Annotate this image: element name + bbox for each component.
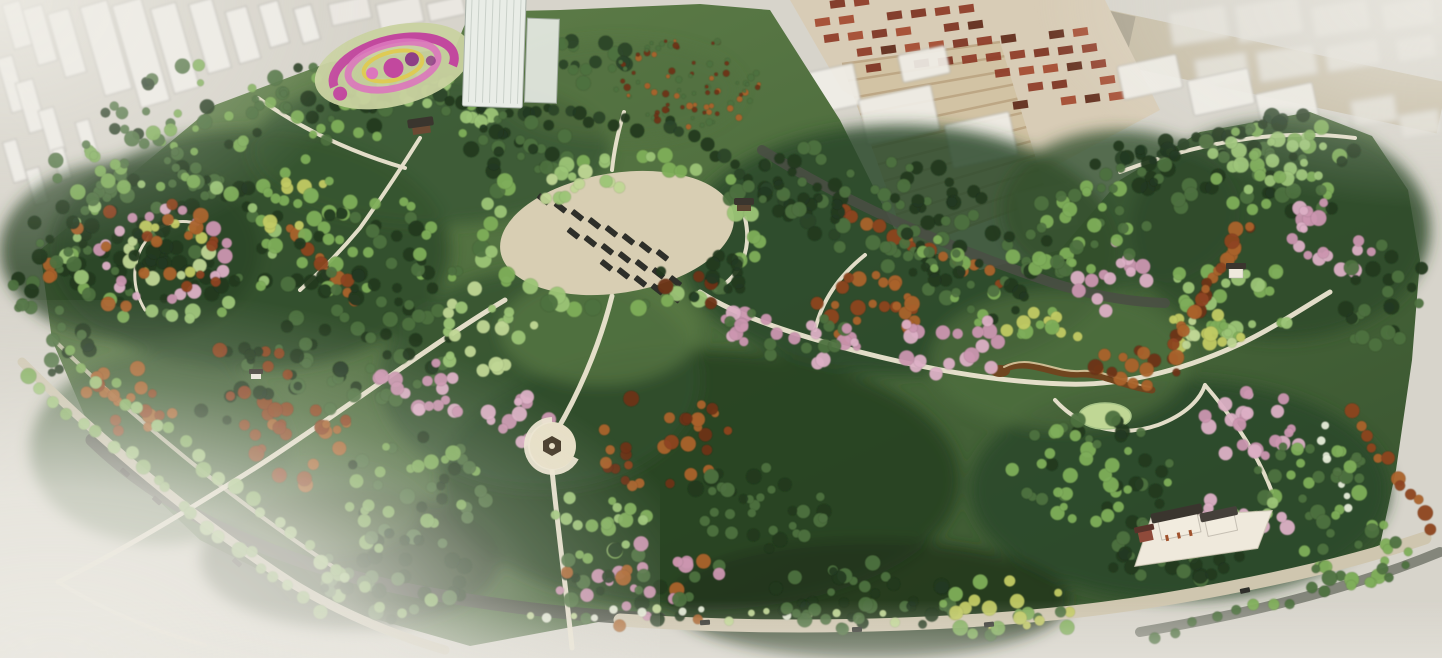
tree [1028, 307, 1040, 319]
tree [1344, 493, 1351, 500]
tree [905, 164, 913, 172]
tree [1019, 292, 1028, 301]
tree [975, 259, 984, 268]
tree [973, 574, 988, 589]
tree [759, 159, 771, 171]
tree [1070, 430, 1081, 441]
tree [753, 70, 759, 76]
tree [650, 41, 654, 45]
tree [1115, 430, 1127, 442]
tree [1317, 436, 1326, 445]
tree [984, 265, 995, 276]
tree [693, 271, 704, 282]
tree [870, 589, 879, 598]
tree [656, 46, 661, 51]
tree [1164, 478, 1172, 486]
tree [693, 103, 697, 107]
tree [1011, 306, 1019, 314]
tree [764, 544, 774, 554]
tree [934, 578, 950, 594]
tree [599, 153, 610, 164]
tree [1173, 267, 1186, 280]
tree [689, 74, 693, 78]
tree [1384, 299, 1400, 315]
tree [902, 320, 912, 330]
tree [652, 52, 657, 57]
tree [886, 157, 897, 168]
tree [494, 205, 507, 218]
tree [788, 168, 797, 177]
tree [930, 264, 938, 272]
tree [734, 318, 748, 332]
tree [688, 130, 700, 142]
tree [747, 98, 752, 103]
tree [1113, 501, 1124, 512]
tree [1079, 452, 1093, 466]
tree [725, 509, 735, 519]
tree [573, 106, 587, 120]
tree [1358, 304, 1371, 317]
tree [441, 106, 451, 116]
tree [1111, 234, 1123, 246]
tree [1268, 264, 1283, 279]
tree [967, 305, 975, 313]
tree [834, 241, 846, 253]
tree [1305, 444, 1315, 454]
tree [1037, 223, 1047, 233]
tree [1054, 589, 1062, 597]
tree [789, 522, 797, 530]
tree [748, 509, 757, 518]
tree [608, 64, 616, 72]
tree [912, 194, 925, 207]
tree [645, 48, 649, 52]
tree [724, 426, 733, 435]
tree [890, 193, 900, 203]
tree [806, 320, 816, 330]
tree [1236, 333, 1245, 342]
tree [865, 555, 881, 571]
tree [931, 160, 947, 176]
tree [827, 588, 835, 596]
tree [850, 300, 866, 316]
tree [1265, 286, 1275, 296]
tree [1407, 283, 1416, 292]
tree [709, 76, 714, 81]
tree [1299, 545, 1311, 557]
tree [681, 94, 685, 98]
tree [657, 148, 673, 164]
tree [386, 258, 398, 270]
tree [528, 144, 538, 154]
tree [1177, 324, 1190, 337]
tree [1317, 247, 1329, 259]
tree [705, 90, 710, 95]
tree [621, 113, 630, 122]
tree [1217, 337, 1227, 347]
tree [1296, 459, 1305, 468]
tree [620, 79, 625, 84]
tree [705, 297, 717, 309]
tree [1189, 330, 1201, 342]
tree [558, 129, 572, 143]
tree [690, 163, 703, 176]
tree [945, 178, 954, 187]
tree [1206, 569, 1217, 580]
tree [739, 93, 743, 97]
tree [1376, 239, 1388, 251]
tree [708, 487, 717, 496]
tree [709, 103, 714, 108]
tree [666, 74, 670, 78]
tree [691, 117, 694, 120]
tree [1382, 286, 1394, 298]
tree [948, 587, 963, 602]
tree [43, 271, 56, 284]
tree [391, 231, 402, 242]
tree [559, 191, 571, 203]
tree [1227, 338, 1237, 348]
tree [1404, 547, 1413, 556]
pavilion-center [734, 198, 754, 211]
tree [664, 435, 679, 450]
tree [1123, 248, 1136, 261]
tree [1385, 250, 1398, 263]
tree [646, 152, 656, 162]
tree [872, 271, 881, 280]
tree [747, 230, 761, 244]
tree [1287, 233, 1298, 244]
tree [1221, 278, 1231, 288]
tree [811, 297, 824, 310]
tree [1245, 222, 1254, 231]
tree [819, 314, 829, 324]
tree [196, 270, 204, 278]
tree [972, 326, 984, 338]
tree [696, 554, 711, 569]
tree [1099, 304, 1113, 318]
tree [952, 329, 963, 340]
tree [1381, 451, 1395, 465]
tree [618, 43, 633, 58]
tree [1415, 262, 1428, 275]
tree [676, 76, 683, 83]
tree [540, 193, 552, 205]
tree [1241, 407, 1254, 420]
tree [1176, 564, 1191, 579]
tree [1218, 397, 1232, 411]
tree [352, 269, 365, 282]
tree [1312, 565, 1321, 574]
tree [761, 314, 772, 325]
tree [865, 235, 881, 251]
tree [368, 278, 381, 291]
tree [1090, 516, 1102, 528]
tree [701, 138, 715, 152]
tree [899, 350, 915, 366]
tree [1116, 258, 1126, 268]
tree [773, 532, 788, 547]
tree [1182, 340, 1191, 349]
tree [467, 281, 482, 296]
tree [816, 352, 831, 367]
tree [8, 280, 19, 291]
tree [614, 182, 626, 194]
tree [644, 83, 650, 89]
tree [1267, 497, 1279, 509]
tree [1139, 454, 1152, 467]
tree [1141, 221, 1152, 232]
tree [914, 355, 927, 368]
tree [749, 251, 761, 263]
tree [522, 278, 538, 294]
tree [1021, 487, 1033, 499]
tree [662, 90, 669, 97]
tree [666, 103, 670, 107]
tree [413, 247, 427, 261]
tree [1070, 413, 1085, 428]
tree [1068, 514, 1077, 523]
tree [714, 38, 721, 45]
mist-top-left [0, 0, 380, 270]
tree [654, 114, 659, 119]
mist-top-right [1030, 0, 1442, 210]
tree [1105, 411, 1121, 427]
tree [1195, 293, 1209, 307]
tree [1069, 240, 1084, 255]
tree [627, 94, 631, 98]
tree [331, 284, 342, 295]
tree [598, 36, 613, 51]
tree [1237, 439, 1249, 451]
tree [1105, 458, 1120, 473]
tree [1344, 460, 1357, 473]
tree [1224, 329, 1233, 338]
tree [1072, 284, 1086, 298]
scene-canvas [0, 0, 1442, 658]
tree [1199, 410, 1212, 423]
tree [1316, 514, 1331, 529]
tree [1104, 272, 1117, 285]
tree [985, 225, 1001, 241]
tree [1312, 471, 1325, 484]
tree [1278, 393, 1289, 404]
tree [859, 581, 871, 593]
tree [177, 271, 186, 280]
tree [933, 235, 942, 244]
tree [1004, 232, 1015, 243]
tree [1354, 473, 1364, 483]
tree [1234, 551, 1244, 561]
tree [280, 276, 295, 291]
tree [1118, 353, 1127, 362]
tree [714, 73, 718, 77]
tree [1085, 274, 1099, 288]
tree [1367, 247, 1376, 256]
tree [1353, 235, 1364, 246]
tree [743, 89, 747, 93]
tree [545, 147, 560, 162]
tree [747, 309, 756, 318]
tree [1346, 580, 1356, 590]
tree [941, 216, 951, 226]
tree [909, 268, 917, 276]
tree [706, 403, 718, 415]
tree [1365, 523, 1380, 538]
tree [1004, 575, 1015, 586]
tree [684, 468, 697, 481]
tree [982, 316, 993, 327]
tree [755, 85, 760, 90]
tree [636, 53, 640, 57]
tree [1233, 418, 1247, 432]
tree [481, 197, 494, 210]
tree [1005, 249, 1020, 264]
tree [778, 478, 791, 491]
tree [739, 494, 748, 503]
tree [658, 279, 674, 295]
tree [1109, 563, 1119, 573]
tree [706, 119, 713, 126]
tree [661, 294, 674, 307]
tree [1118, 547, 1132, 561]
tree [662, 106, 669, 113]
tree [1126, 267, 1136, 277]
tree [797, 142, 810, 155]
tree [568, 65, 578, 75]
tree [710, 508, 719, 517]
tree [1261, 451, 1270, 460]
tree [901, 228, 913, 240]
tree [1248, 320, 1256, 328]
tree [878, 277, 888, 287]
tree [494, 147, 504, 157]
tree [1183, 282, 1195, 294]
tree [674, 165, 687, 178]
tree [1331, 511, 1340, 520]
tree [1356, 421, 1366, 431]
tree [1322, 570, 1338, 586]
tree [832, 199, 843, 210]
tree [82, 288, 96, 302]
tree [1124, 447, 1132, 455]
tree [1390, 536, 1402, 548]
tree [725, 61, 729, 65]
tree [573, 178, 585, 190]
tree [1070, 271, 1084, 285]
tree [928, 273, 941, 286]
tree [673, 39, 676, 42]
tree [692, 61, 696, 65]
tree [1116, 531, 1130, 545]
tree [717, 149, 731, 163]
tree [1268, 469, 1282, 483]
tree [499, 111, 507, 119]
tree [759, 195, 767, 203]
tree [1281, 317, 1293, 329]
tree [427, 283, 438, 294]
tree [1093, 440, 1102, 449]
tree [964, 347, 980, 363]
tree [1240, 386, 1253, 399]
tree [1045, 448, 1056, 459]
tree [688, 481, 704, 497]
tree [924, 247, 935, 258]
tree [1402, 561, 1410, 569]
tree [798, 529, 811, 542]
tree [700, 516, 711, 527]
tree [1338, 301, 1354, 317]
tree [1345, 403, 1360, 418]
tower-annex [524, 18, 559, 103]
tree [691, 412, 705, 426]
tree [593, 112, 605, 124]
tree [608, 120, 620, 132]
tree [517, 152, 525, 160]
tree [761, 463, 771, 473]
tree [1087, 218, 1102, 233]
tree [792, 202, 807, 217]
tree [1311, 210, 1327, 226]
tree [478, 135, 488, 145]
tree [636, 80, 640, 84]
park-masterplan-rendering [0, 0, 1442, 658]
tree [632, 71, 636, 75]
tree [788, 570, 802, 584]
tree [1046, 458, 1058, 470]
tree [813, 183, 822, 192]
tree [116, 276, 127, 287]
tree [1291, 443, 1304, 456]
tree [583, 117, 594, 128]
tree [1165, 459, 1174, 468]
tree [318, 284, 332, 298]
tree [1155, 499, 1164, 508]
tree [788, 332, 800, 344]
tree [614, 87, 619, 92]
tree [1139, 274, 1153, 288]
pagoda-east [1226, 263, 1246, 278]
tree [1053, 487, 1063, 497]
tree [873, 219, 887, 233]
tree [680, 436, 696, 452]
tree [903, 251, 914, 262]
tree [967, 281, 975, 289]
tree [727, 105, 734, 112]
tree [399, 197, 408, 206]
tree [702, 445, 713, 456]
tree [1212, 309, 1225, 322]
tree [656, 266, 666, 276]
tree [1425, 524, 1437, 536]
tree [1090, 240, 1098, 248]
tree [976, 192, 988, 204]
tree [870, 185, 879, 194]
tree [1379, 521, 1388, 530]
tree [1091, 293, 1103, 305]
tree [952, 249, 960, 257]
tree [767, 486, 775, 494]
tree [689, 571, 701, 583]
tree [664, 412, 675, 423]
tree [889, 279, 901, 291]
tree [576, 76, 591, 91]
tree [623, 66, 628, 71]
tree [831, 301, 839, 309]
tree [745, 82, 749, 86]
tree [1344, 260, 1360, 276]
tree [1201, 285, 1210, 294]
